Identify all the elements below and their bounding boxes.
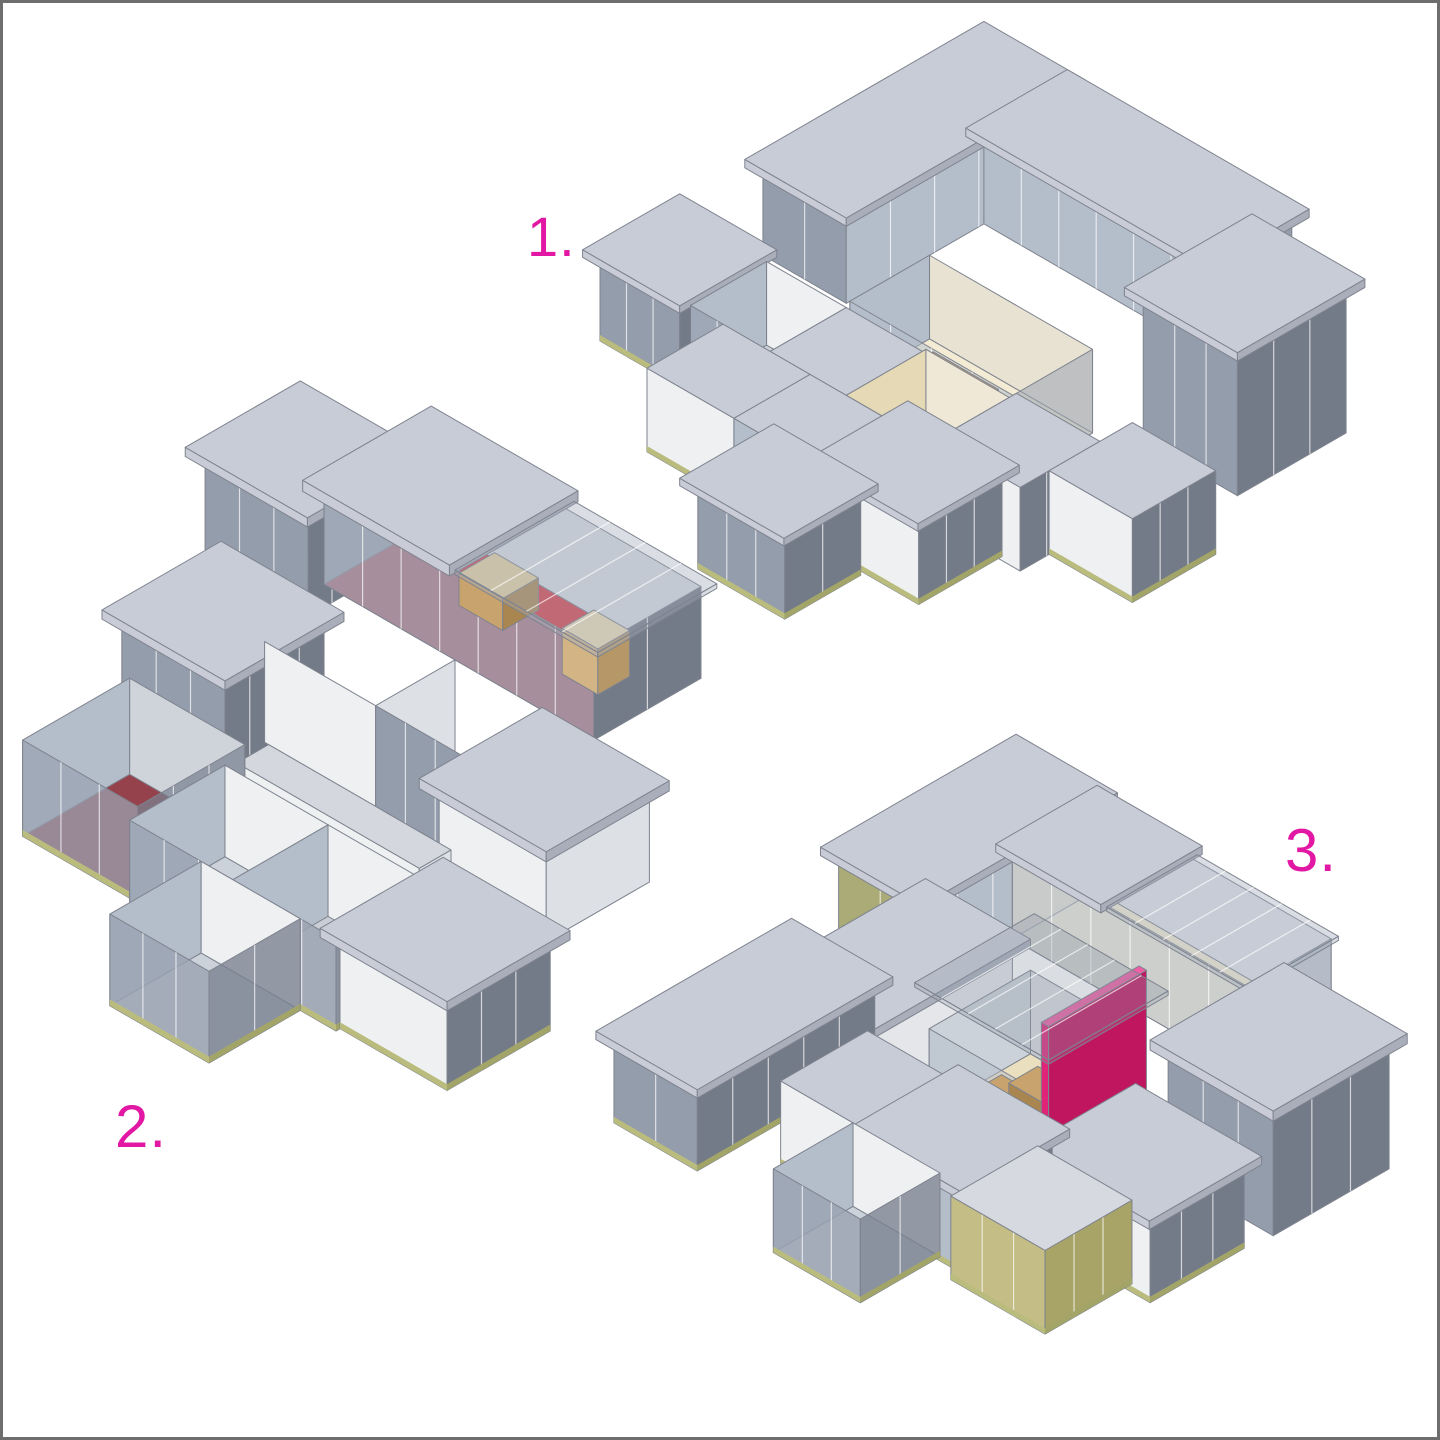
figure-1-number-label: 1. [527,209,576,265]
figure-3-number-label: 3. [1285,821,1337,881]
axonometric-scene-svg [3,3,1437,1437]
axonometric-view-2 [23,381,717,1091]
figure-2-number-label: 2. [115,1097,167,1157]
axonometric-view-1 [583,21,1365,619]
diagram-sheet: 1. 2. 3. [0,0,1440,1440]
